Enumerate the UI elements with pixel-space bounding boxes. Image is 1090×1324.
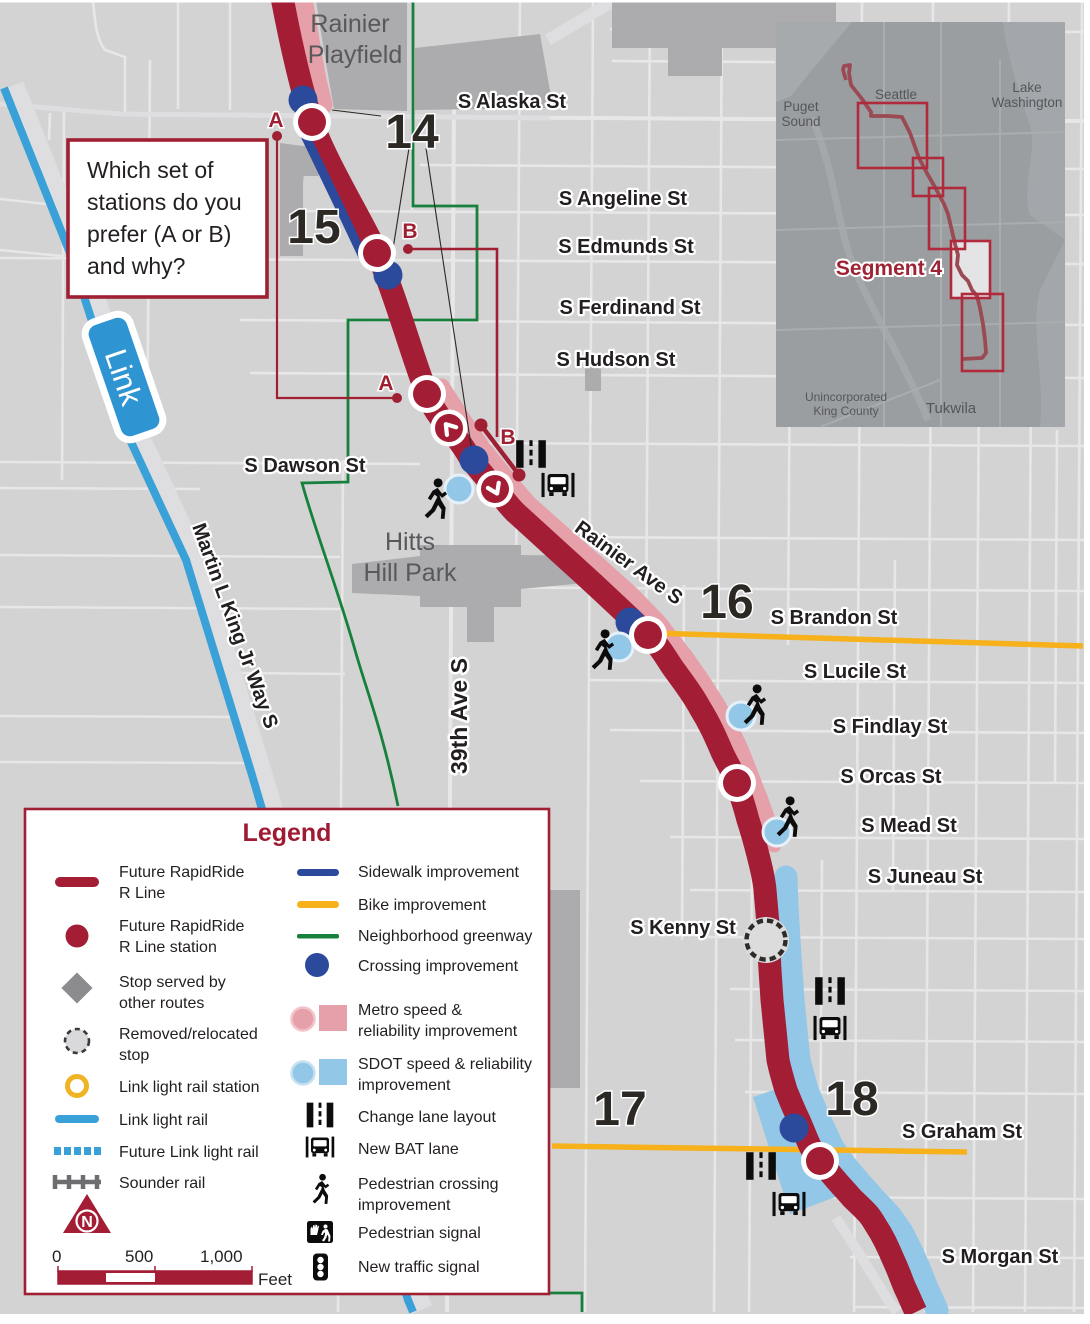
svg-text:S Hudson St: S Hudson St xyxy=(557,349,676,371)
svg-text:Washington: Washington xyxy=(992,95,1063,110)
svg-text:R Line: R Line xyxy=(119,885,165,902)
svg-text:R Line station: R Line station xyxy=(119,939,217,956)
svg-text:Link light rail: Link light rail xyxy=(119,1112,208,1129)
svg-text:S Alaska St: S Alaska St xyxy=(458,91,567,113)
svg-text:15: 15 xyxy=(287,201,340,254)
svg-text:Link light rail station: Link light rail station xyxy=(119,1079,260,1096)
svg-text:N: N xyxy=(81,1214,93,1231)
svg-text:0: 0 xyxy=(52,1247,61,1266)
svg-text:S Dawson St: S Dawson St xyxy=(244,455,365,477)
svg-text:Playfield: Playfield xyxy=(308,41,403,69)
svg-text:S Edmunds St: S Edmunds St xyxy=(558,236,694,258)
svg-text:S Brandon St: S Brandon St xyxy=(771,607,898,629)
svg-text:500: 500 xyxy=(125,1247,153,1266)
svg-text:1,000: 1,000 xyxy=(200,1247,243,1266)
svg-text:Hitts: Hitts xyxy=(385,528,435,556)
svg-text:Tukwila: Tukwila xyxy=(926,400,977,417)
svg-text:Pedestrian crossing: Pedestrian crossing xyxy=(358,1176,499,1193)
svg-text:17: 17 xyxy=(593,1083,646,1136)
svg-text:18: 18 xyxy=(825,1073,878,1126)
svg-text:B: B xyxy=(402,220,417,243)
svg-text:S Lucile St: S Lucile St xyxy=(804,661,907,683)
svg-text:Future RapidRide: Future RapidRide xyxy=(119,918,245,935)
svg-text:other routes: other routes xyxy=(119,995,204,1012)
svg-text:reliability improvement: reliability improvement xyxy=(358,1023,518,1040)
svg-text:Neighborhood greenway: Neighborhood greenway xyxy=(358,928,532,945)
svg-text:improvement: improvement xyxy=(358,1077,451,1094)
svg-text:Future RapidRide: Future RapidRide xyxy=(119,864,245,881)
svg-text:Legend: Legend xyxy=(243,819,332,847)
svg-text:S Mead St: S Mead St xyxy=(861,815,957,837)
svg-text:39th Ave S: 39th Ave S xyxy=(446,658,472,774)
svg-text:Crossing improvement: Crossing improvement xyxy=(358,958,519,975)
svg-text:Sounder rail: Sounder rail xyxy=(119,1175,205,1192)
svg-text:Hill Park: Hill Park xyxy=(363,559,457,587)
svg-text:Feet: Feet xyxy=(258,1270,292,1289)
svg-text:Sound: Sound xyxy=(781,114,820,129)
svg-text:Seattle: Seattle xyxy=(875,87,917,102)
svg-text:Removed/relocated: Removed/relocated xyxy=(119,1026,258,1043)
svg-text:stations do you: stations do you xyxy=(87,189,242,215)
svg-text:S Findlay St: S Findlay St xyxy=(833,716,948,738)
svg-text:King County: King County xyxy=(813,404,878,418)
svg-text:S Ferdinand St: S Ferdinand St xyxy=(559,297,700,319)
svg-text:S Juneau St: S Juneau St xyxy=(868,866,983,888)
svg-text:Stop served by: Stop served by xyxy=(119,974,226,991)
svg-text:Future Link light rail: Future Link light rail xyxy=(119,1144,259,1161)
svg-text:S Morgan St: S Morgan St xyxy=(942,1246,1059,1268)
svg-text:16: 16 xyxy=(700,576,753,629)
svg-text:Unincorporated: Unincorporated xyxy=(805,390,887,404)
svg-text:prefer (A or B): prefer (A or B) xyxy=(87,221,231,247)
svg-text:New traffic signal: New traffic signal xyxy=(358,1259,480,1276)
svg-text:and why?: and why? xyxy=(87,253,185,279)
svg-text:14: 14 xyxy=(385,106,439,159)
svg-text:B: B xyxy=(500,426,515,449)
svg-text:Metro speed &: Metro speed & xyxy=(358,1002,462,1019)
svg-text:Segment 4: Segment 4 xyxy=(836,257,943,280)
svg-text:S Kenny St: S Kenny St xyxy=(630,917,736,939)
svg-text:New BAT lane: New BAT lane xyxy=(358,1141,459,1158)
svg-text:A: A xyxy=(378,372,393,395)
svg-text:stop: stop xyxy=(119,1047,149,1064)
svg-text:Bike improvement: Bike improvement xyxy=(358,897,487,914)
svg-text:S Graham St: S Graham St xyxy=(902,1121,1022,1143)
svg-text:improvement: improvement xyxy=(358,1197,451,1214)
svg-text:Change lane layout: Change lane layout xyxy=(358,1109,496,1126)
svg-text:Lake: Lake xyxy=(1012,80,1041,95)
svg-text:Which set of: Which set of xyxy=(87,157,214,183)
svg-text:Rainier: Rainier xyxy=(310,10,389,38)
svg-text:SDOT speed & reliability: SDOT speed & reliability xyxy=(358,1056,532,1073)
svg-text:Pedestrian signal: Pedestrian signal xyxy=(358,1225,481,1242)
svg-text:Puget: Puget xyxy=(783,99,819,114)
svg-text:S Angeline St: S Angeline St xyxy=(559,188,688,210)
svg-text:A: A xyxy=(268,109,283,132)
svg-text:Sidewalk improvement: Sidewalk improvement xyxy=(358,864,520,881)
svg-text:S Orcas St: S Orcas St xyxy=(840,766,942,788)
